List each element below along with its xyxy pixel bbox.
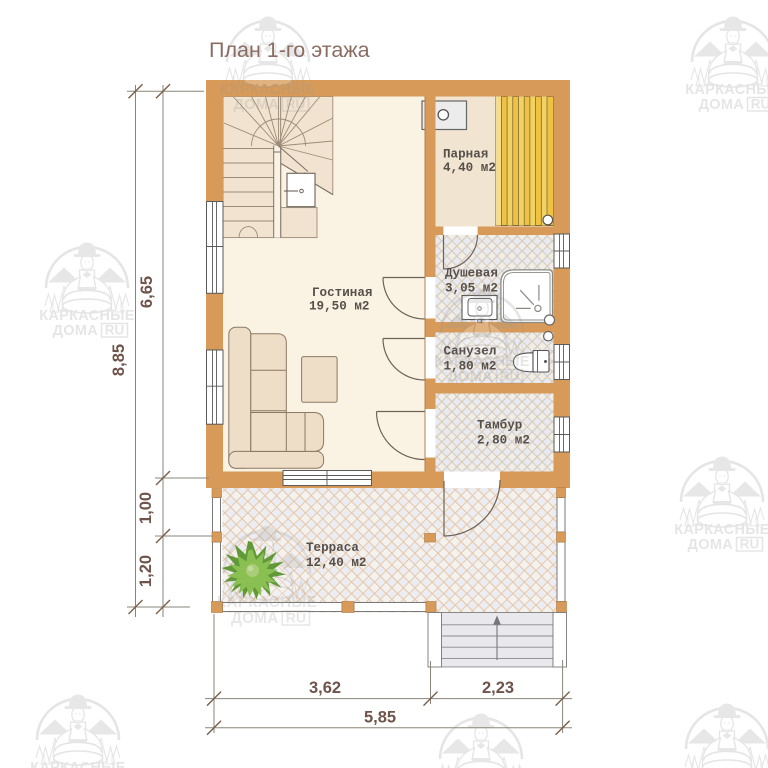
svg-text:2,80 м2: 2,80 м2 [477, 434, 530, 448]
svg-text:Парная: Парная [443, 148, 488, 162]
svg-text:5,85: 5,85 [364, 709, 396, 727]
svg-text:2,23: 2,23 [482, 679, 514, 697]
svg-text:Санузел: Санузел [444, 345, 497, 359]
svg-text:19,50 м2: 19,50 м2 [309, 300, 369, 314]
svg-text:Тамбур: Тамбур [477, 418, 522, 433]
svg-text:3,05 м2: 3,05 м2 [445, 282, 498, 296]
svg-text:1,80 м2: 1,80 м2 [444, 360, 497, 374]
svg-text:4,40 м2: 4,40 м2 [443, 161, 496, 175]
svg-text:План 1-го этажа: План 1-го этажа [209, 38, 370, 62]
svg-text:Терраса: Терраса [306, 541, 359, 555]
svg-text:Гостиная: Гостиная [312, 286, 372, 300]
svg-text:3,62: 3,62 [309, 679, 341, 697]
svg-text:6,65: 6,65 [138, 276, 156, 308]
svg-text:1,00: 1,00 [137, 492, 155, 524]
svg-text:1,20: 1,20 [137, 555, 155, 587]
svg-text:Душевая: Душевая [445, 267, 498, 281]
svg-text:8,85: 8,85 [110, 344, 128, 376]
svg-text:12,40 м2: 12,40 м2 [306, 556, 366, 570]
